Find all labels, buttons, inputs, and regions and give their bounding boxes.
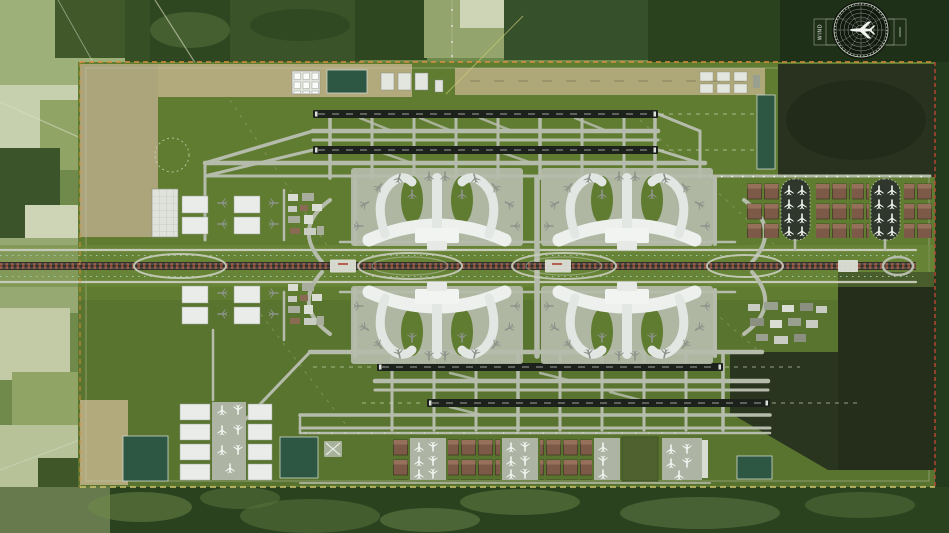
- wind-rose-label: WIND: [818, 24, 824, 40]
- concourse-buildings: [852, 182, 869, 238]
- concourse-buildings: [904, 182, 934, 238]
- terminal-4: [541, 282, 713, 364]
- rail-station: [330, 260, 356, 273]
- terminal-2: [541, 168, 713, 250]
- concourse-buildings: [746, 182, 780, 238]
- green-plot: [622, 437, 658, 481]
- pond: [737, 456, 772, 479]
- cargo-apron: [502, 438, 538, 480]
- pond: [757, 95, 775, 169]
- runway-3: [377, 363, 723, 371]
- reserved-block-east: [838, 272, 935, 470]
- pond: [327, 70, 367, 93]
- runway-2: [313, 146, 658, 154]
- cargo-apron: [662, 438, 702, 480]
- rail-station: [838, 260, 858, 272]
- reserved-field-west: [80, 64, 158, 237]
- fuel-tank-farm: [292, 71, 320, 94]
- runway-1: [313, 110, 658, 118]
- runway-4: [427, 399, 770, 407]
- concourse-buildings: [816, 182, 850, 238]
- cargo-buildings: [392, 438, 408, 480]
- pond: [280, 437, 318, 478]
- satellite-apron-1: [781, 179, 810, 240]
- cargo-buildings: [448, 438, 500, 480]
- cargo-buildings: [540, 438, 592, 480]
- terminal-1: [351, 168, 523, 250]
- helipad: [324, 441, 342, 457]
- satellite-apron-2: [871, 179, 900, 240]
- cargo-apron: [594, 438, 620, 480]
- rail-station: [545, 260, 571, 273]
- pond: [123, 436, 168, 481]
- terminal-3: [351, 282, 523, 364]
- cargo-apron: [410, 438, 446, 480]
- reserved-field-southwest: [80, 400, 128, 485]
- airport-master-plan-rendering: WIND: [0, 0, 949, 533]
